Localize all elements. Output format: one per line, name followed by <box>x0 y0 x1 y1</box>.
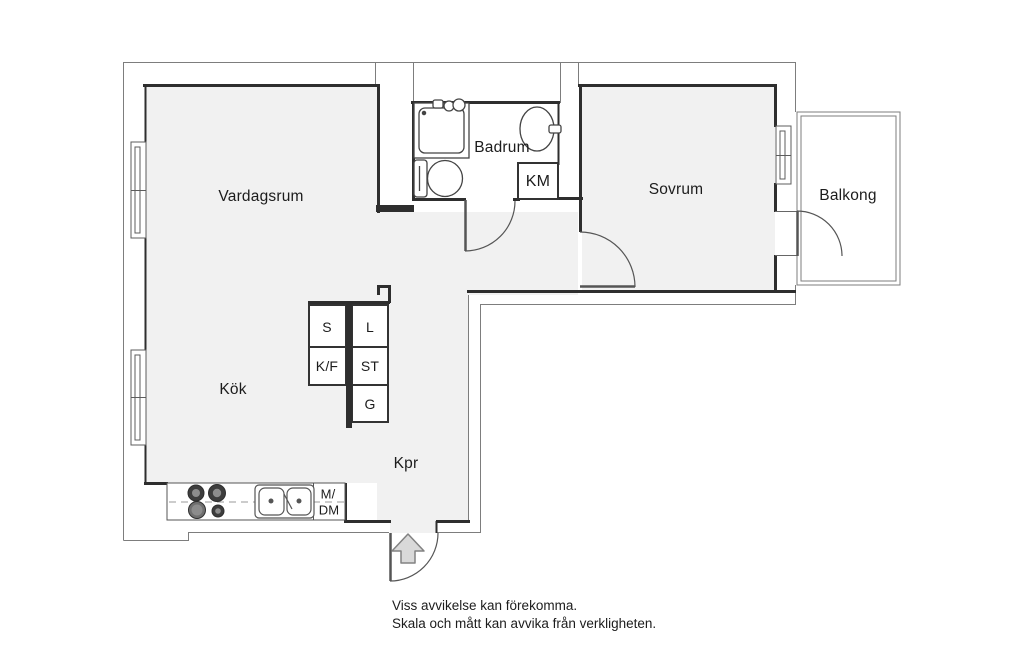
closet-label-g: G <box>364 396 375 412</box>
double-sink-icon <box>255 485 314 518</box>
window-icon-left-top <box>131 142 146 238</box>
entry-arrow-icon <box>392 534 424 563</box>
floorplan-page: Vardagsrum Kök Badrum Sovrum Balkong Kpr… <box>0 0 1024 646</box>
closet-label-kf: K/F <box>316 358 338 374</box>
closet-label-s: S <box>322 319 332 335</box>
room-label-kitchen: Kök <box>219 381 246 399</box>
disclaimer-line-2: Skala och mått kan avvika från verklighe… <box>392 616 656 631</box>
closet-label-st: ST <box>361 358 379 374</box>
washing-machine-label: KM <box>526 173 550 191</box>
micro-dishwasher-label-line1: M/ <box>321 487 336 502</box>
room-label-balcony: Balkong <box>819 187 876 205</box>
closet-divider-wall <box>346 301 352 428</box>
room-label-living-room: Vardagsrum <box>218 188 303 206</box>
floorplan-svg <box>0 0 1024 646</box>
shower-icon <box>414 99 469 158</box>
window-icon-bedroom <box>776 126 791 184</box>
disclaimer-line-1: Viss avvikelse kan förekomma. <box>392 598 577 613</box>
window-icon-left-bottom <box>131 350 146 445</box>
room-label-bathroom: Badrum <box>474 139 529 157</box>
micro-dishwasher-label-line2: DM <box>319 503 340 518</box>
room-label-bedroom: Sovrum <box>649 181 704 199</box>
room-label-hall: Kpr <box>394 455 419 473</box>
closet-label-l: L <box>366 319 374 335</box>
toilet-icon <box>414 160 463 197</box>
